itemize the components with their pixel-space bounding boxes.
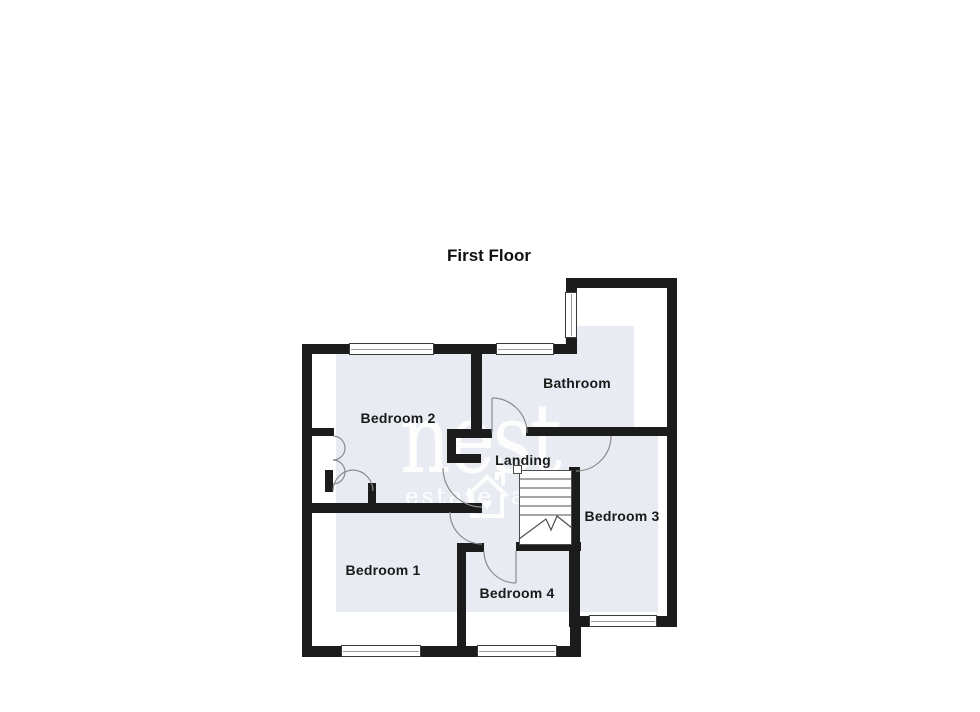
window [349,343,434,355]
wall-segment [667,278,677,627]
watermark-tint-bedroom3 [634,436,658,612]
room-label-bedroom2: Bedroom 2 [361,410,436,426]
window [496,343,554,355]
room-label-bedroom1: Bedroom 1 [346,562,421,578]
wall-segment [368,483,376,508]
room-label-bedroom3: Bedroom 3 [585,508,660,524]
wall-segment [325,470,333,492]
room-label-bedroom4: Bedroom 4 [480,585,555,601]
window [565,292,577,338]
wall-segment [471,348,482,431]
wall-segment [457,543,466,652]
wall-segment [566,278,677,288]
window [589,615,657,627]
page-title: First Floor [447,246,531,266]
room-label-bathroom: Bathroom [543,375,611,391]
wall-segment [308,428,334,436]
floor-plan: nest estate a ♥ [0,0,980,712]
window [477,645,557,657]
svg-text:♥: ♥ [482,494,493,514]
wall-segment [302,344,312,657]
window [341,645,421,657]
staircase [519,470,572,545]
wall-segment [526,427,668,436]
wall-segment [447,454,481,463]
wall-segment [302,503,482,513]
room-label-landing: Landing [495,452,551,468]
